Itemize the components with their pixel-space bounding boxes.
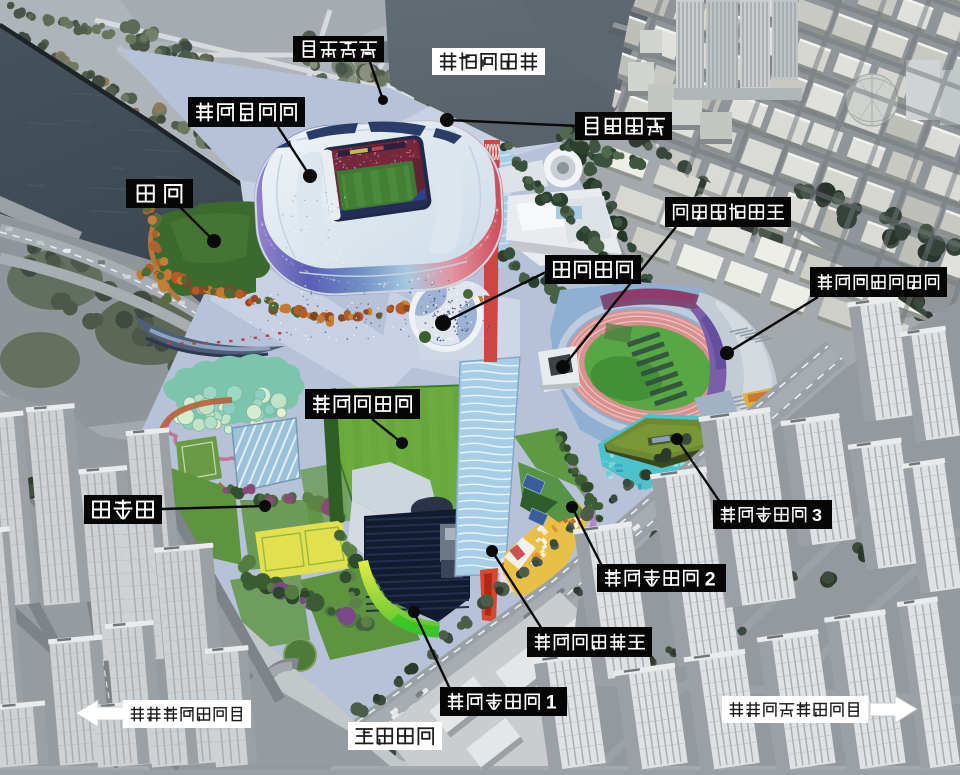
svg-text:2: 2: [705, 568, 716, 590]
svg-text:1: 1: [546, 693, 557, 714]
svg-text:3: 3: [812, 505, 822, 525]
